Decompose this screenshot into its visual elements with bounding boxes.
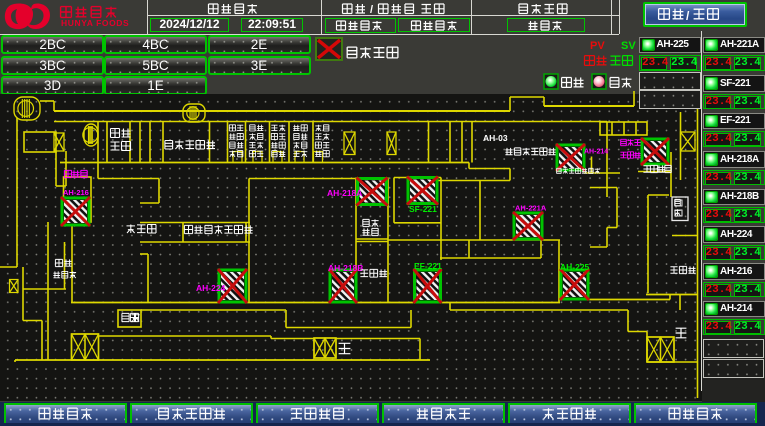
svg-text:AH-03: AH-03 <box>483 133 508 143</box>
svg-text:AH-221A: AH-221A <box>515 204 547 213</box>
svg-text:EF-221: EF-221 <box>414 261 442 271</box>
svg-text:SF-221: SF-221 <box>409 204 437 214</box>
svg-text:AH-218A: AH-218A <box>327 188 362 198</box>
svg-text:AH-218B: AH-218B <box>328 263 363 273</box>
svg-text:AH-224: AH-224 <box>196 283 226 293</box>
svg-text:AH-214: AH-214 <box>584 149 608 156</box>
svg-text:AH-216: AH-216 <box>63 188 89 197</box>
svg-text:AH-225: AH-225 <box>560 262 590 272</box>
